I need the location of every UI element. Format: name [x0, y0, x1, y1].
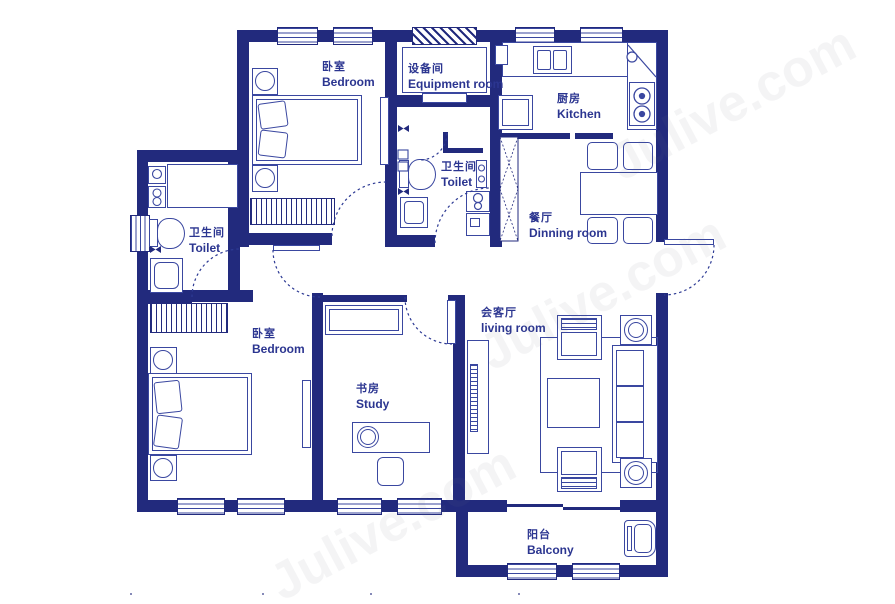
door-arc-bedroom-top	[332, 182, 386, 236]
appliance-inner	[470, 218, 480, 227]
wall	[137, 150, 148, 512]
door-leaf	[380, 97, 389, 165]
pillow	[153, 380, 182, 415]
armchair-seat	[561, 332, 597, 356]
room-name-en: Bedroom	[322, 75, 375, 89]
dining-chair	[623, 217, 653, 244]
toilet-bowl	[408, 159, 436, 190]
window	[277, 27, 318, 45]
basin-inner	[404, 201, 424, 224]
room-name-zh: 卧室	[252, 325, 305, 341]
tick-dot	[518, 593, 520, 595]
shower-enclosure	[167, 164, 238, 208]
radiator	[250, 198, 335, 225]
room-name-en: Toilet	[441, 175, 477, 189]
door-threshold	[273, 245, 320, 251]
sink-basin	[537, 50, 551, 70]
room-label-equipment: 设备间 Equipment room	[408, 60, 503, 91]
room-label-bedroom-top: 卧室 Bedroom	[322, 58, 375, 89]
room-label-kitchen: 厨房 Kitchen	[557, 90, 601, 121]
wall	[312, 293, 323, 512]
room-name-en: Bedroom	[252, 342, 305, 356]
entry-door-leaf	[664, 239, 714, 245]
window	[237, 498, 285, 515]
fridge-inner	[502, 99, 529, 126]
lamp	[255, 71, 275, 91]
wall-cabinet	[476, 160, 487, 188]
lamp	[153, 350, 173, 370]
sink-basin	[553, 50, 567, 70]
equipment-vent	[422, 93, 467, 103]
desk-chair-seat-inner	[360, 429, 376, 445]
tick-dot	[370, 593, 372, 595]
bookshelf-inner	[329, 309, 399, 331]
lamp	[153, 458, 173, 478]
room-name-zh: 厨房	[557, 90, 601, 106]
dining-chair	[623, 142, 653, 170]
window	[572, 563, 620, 580]
room-name-en: Kitchen	[557, 107, 601, 121]
room-name-en: Study	[356, 397, 389, 411]
tv	[470, 364, 478, 432]
partition-wall	[443, 148, 483, 153]
shaft	[500, 137, 518, 241]
window	[333, 27, 373, 45]
wall	[237, 233, 332, 245]
window	[507, 563, 557, 580]
armchair-back	[561, 318, 597, 330]
toilet-bowl	[157, 218, 185, 249]
room-label-balcony: 阳台 Balcony	[527, 526, 574, 557]
washing-machine-panel	[627, 526, 632, 551]
door-leaf	[447, 300, 456, 344]
room-name-en: Dinning room	[529, 226, 607, 240]
room-name-zh: 设备间	[408, 60, 503, 76]
room-name-zh: 餐厅	[529, 209, 607, 225]
washer-box	[148, 186, 166, 208]
plant-inner	[628, 465, 644, 481]
washing-machine-door	[634, 524, 652, 553]
wall	[456, 565, 668, 577]
equipment-vent-window	[412, 27, 477, 45]
wall	[385, 235, 435, 247]
door-arc-study	[405, 297, 452, 344]
room-name-zh: 卫生间	[441, 158, 477, 174]
armchair-back	[561, 477, 597, 489]
floor-plan: 卧室 Bedroom 设备间 Equipment room 厨房 Kitchen…	[0, 0, 895, 604]
wall	[490, 235, 502, 247]
sofa-cushion	[616, 350, 644, 386]
wall	[502, 133, 570, 139]
room-label-bedroom-bottom: 卧室 Bedroom	[252, 325, 305, 356]
room-name-zh: 会客厅	[481, 304, 546, 320]
window	[177, 498, 225, 515]
plant-inner	[628, 322, 644, 338]
wall	[445, 500, 507, 512]
door-arc-corridor	[273, 250, 320, 297]
room-name-en: Toilet	[189, 241, 225, 255]
room-label-toilet-mid: 卫生间 Toilet	[441, 158, 477, 189]
tick-dot	[130, 593, 132, 595]
lamp	[255, 168, 275, 188]
door-arc-entry	[664, 245, 714, 295]
sofa-cushion	[616, 386, 644, 422]
coffee-table	[547, 378, 600, 428]
room-name-en: living room	[481, 321, 546, 335]
radiator	[150, 303, 228, 333]
tick-dot	[262, 593, 264, 595]
room-label-dining: 餐厅 Dinning room	[529, 209, 607, 240]
pillow	[153, 414, 183, 449]
bathtub-inner	[154, 262, 179, 289]
room-name-zh: 卧室	[322, 58, 375, 74]
wall	[320, 295, 407, 302]
window	[397, 498, 442, 515]
window	[337, 498, 382, 515]
dining-chair	[587, 142, 618, 170]
room-name-en: Equipment room	[408, 77, 503, 91]
armchair-seat	[561, 451, 597, 475]
door-leaf	[302, 380, 311, 448]
room-name-en: Balcony	[527, 543, 574, 557]
pillow	[258, 129, 289, 158]
room-name-zh: 阳台	[527, 526, 574, 542]
window	[130, 215, 150, 252]
washbasin	[148, 166, 166, 184]
room-label-study: 书房 Study	[356, 380, 389, 411]
room-name-zh: 卫生间	[189, 224, 225, 240]
stove	[629, 82, 655, 126]
room-name-zh: 书房	[356, 380, 389, 396]
sofa-cushion	[616, 422, 644, 458]
water-heater	[466, 191, 490, 212]
chair	[377, 457, 404, 486]
room-label-living: 会客厅 living room	[481, 304, 546, 335]
room-label-toilet-left: 卫生间 Toilet	[189, 224, 225, 255]
sliding-door	[507, 504, 563, 507]
pillow	[257, 100, 288, 130]
wall	[137, 150, 240, 162]
sliding-door	[563, 507, 620, 510]
wall	[575, 133, 613, 139]
